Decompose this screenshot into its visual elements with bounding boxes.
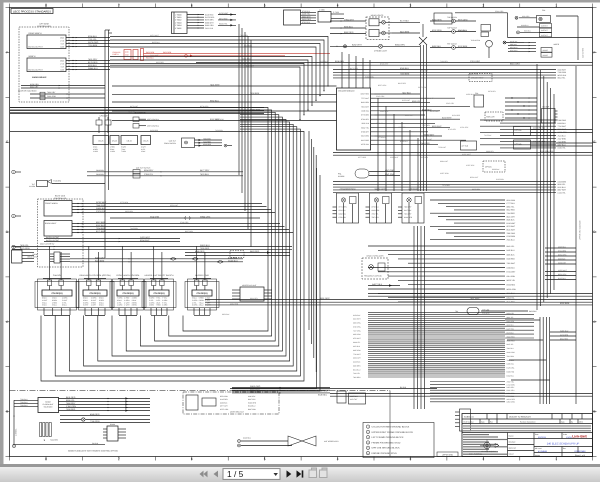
- svg-text:9796 GRN: 9796 GRN: [398, 126, 407, 129]
- svg-text:W179 ORG: W179 ORG: [205, 16, 215, 19]
- svg-text:REAR WINCH: REAR WINCH: [29, 32, 42, 35]
- svg-text:9921 BLK: 9921 BLK: [362, 122, 370, 125]
- svg-text:Link-Belt: Link-Belt: [572, 434, 587, 438]
- svg-text:9892 BLU: 9892 BLU: [210, 100, 219, 103]
- svg-text:C742 GRN: C742 GRN: [507, 383, 516, 386]
- svg-text:7431 WHT: 7431 WHT: [210, 84, 220, 87]
- svg-text:C411 BLK: C411 BLK: [205, 27, 214, 30]
- svg-text:C536 YEL: C536 YEL: [558, 147, 566, 150]
- svg-text:E: E: [593, 140, 595, 144]
- svg-text:7488 ORG: 7488 ORG: [558, 119, 567, 122]
- svg-text:CAL: CAL: [475, 92, 479, 95]
- svg-text:7423 BRN: 7423 BRN: [558, 141, 567, 144]
- svg-text:9631 GRY: 9631 GRY: [507, 215, 516, 218]
- svg-text:W562 YEL: W562 YEL: [361, 126, 369, 129]
- svg-text:GND: GND: [60, 36, 65, 39]
- svg-text:W178 ORG: W178 ORG: [88, 41, 99, 44]
- svg-text:C748 ORG: C748 ORG: [180, 221, 189, 224]
- svg-text:3 T9602: 3 T9602: [175, 19, 182, 22]
- svg-text:NUT UPPER ASSY: NUT UPPER ASSY: [324, 440, 339, 443]
- svg-text:9904 GRY: 9904 GRY: [144, 169, 154, 172]
- svg-text:W711 GRY: W711 GRY: [460, 126, 469, 129]
- svg-text:2808 BRN: 2808 BRN: [96, 169, 105, 172]
- svg-text:Drawn: Drawn: [509, 435, 514, 438]
- svg-text:1 GRN: 1 GRN: [117, 304, 123, 307]
- svg-text:7557 GRY: 7557 GRY: [422, 124, 431, 127]
- svg-text:ANT GND: ANT GND: [385, 169, 395, 172]
- svg-text:7538 BRN: 7538 BRN: [250, 92, 260, 95]
- svg-text:HYD TILT: HYD TILT: [350, 398, 357, 401]
- svg-text:W131 WHT: W131 WHT: [462, 153, 471, 156]
- svg-text:C773 BRN: C773 BRN: [120, 201, 129, 204]
- svg-text:C198 YEL: C198 YEL: [302, 13, 310, 16]
- svg-text:C237 RED: C237 RED: [470, 73, 479, 76]
- svg-text:W04 GRN: W04 GRN: [163, 51, 172, 54]
- svg-text:ALARM: ALARM: [29, 185, 35, 188]
- svg-text:3: 3: [410, 4, 412, 8]
- svg-text:CN-254(A): CN-254(A): [153, 292, 164, 295]
- svg-text:B357 GRN: B357 GRN: [378, 84, 387, 87]
- svg-text:P-T306: P-T306: [333, 11, 339, 14]
- svg-text:7526 RED: 7526 RED: [200, 247, 210, 250]
- svg-text:DIGITAL OUTPUT: DIGITAL OUTPUT: [28, 69, 44, 72]
- svg-text:W14 GRN: W14 GRN: [150, 215, 160, 218]
- svg-text:C126 YEL: C126 YEL: [558, 192, 566, 195]
- svg-text:B978 BRN: B978 BRN: [205, 19, 214, 22]
- svg-text:7748 ORG: 7748 ORG: [53, 180, 62, 183]
- svg-text:B278 ORG: B278 ORG: [200, 105, 209, 108]
- svg-text:5 WHT: 5 WHT: [83, 304, 88, 307]
- svg-text:7691 BLU: 7691 BLU: [507, 238, 516, 241]
- svg-text:W260 BLU: W260 BLU: [380, 110, 389, 113]
- svg-text:7401 GRY: 7401 GRY: [88, 58, 98, 61]
- svg-text:B491 GRN: B491 GRN: [361, 101, 370, 104]
- svg-text:HEATER & A/C SELECT SWITCH: HEATER & A/C SELECT SWITCH: [145, 274, 174, 277]
- svg-text:7637 WHT: 7637 WHT: [470, 297, 480, 300]
- svg-text:8: 8: [45, 4, 47, 8]
- svg-text:7906 ORG: 7906 ORG: [507, 232, 516, 235]
- svg-text:8114 GRN: 8114 GRN: [507, 275, 516, 278]
- svg-text:W286 BLU: W286 BLU: [560, 330, 569, 333]
- svg-text:LEFT FRAME GROUND BLOCK: LEFT FRAME GROUND BLOCK: [372, 436, 404, 439]
- svg-text:7 RED: 7 RED: [156, 304, 162, 307]
- svg-text:WINCH: WINCH: [29, 55, 36, 58]
- svg-text:9741 ORG: 9741 ORG: [558, 250, 567, 253]
- svg-text:8233 WHT: 8233 WHT: [442, 117, 452, 120]
- svg-text:7784 WHT: 7784 WHT: [558, 125, 567, 128]
- svg-text:B808 YEL: B808 YEL: [507, 296, 515, 299]
- svg-text:W735 WHT: W735 WHT: [219, 12, 229, 15]
- svg-text:9209 ORG: 9209 ORG: [203, 143, 212, 146]
- svg-text:Rev: Rev: [490, 420, 493, 423]
- svg-text:CAD - Solid Edge: CAD - Solid Edge: [469, 453, 482, 456]
- svg-text:MULTI-LEVER SW: MULTI-LEVER SW: [40, 243, 55, 246]
- svg-text:B916 BLU: B916 BLU: [335, 60, 345, 63]
- svg-text:9976 ORG: 9976 ORG: [458, 18, 468, 21]
- svg-text:W274 WHT: W274 WHT: [150, 34, 159, 37]
- svg-text:CONTROLLER: CONTROLLER: [54, 197, 67, 200]
- svg-text:J-T306: J-T306: [319, 9, 325, 12]
- svg-text:C308 BLU: C308 BLU: [361, 110, 370, 113]
- svg-text:240 ELEC SCHEM UPR UP: 240 ELEC SCHEM UPR UP: [547, 442, 580, 445]
- svg-text:3/2/2013: 3/2/2013: [538, 436, 547, 439]
- svg-text:C603 BLU: C603 BLU: [558, 246, 567, 249]
- svg-text:B673 RED: B673 RED: [350, 67, 359, 70]
- svg-text:B256 WHT: B256 WHT: [470, 176, 478, 179]
- svg-text:DEALER TO REBUILDS: DEALER TO REBUILDS: [509, 416, 531, 419]
- svg-text:FRONT WINCH CONTROL: FRONT WINCH CONTROL: [116, 274, 139, 277]
- svg-text:8132 WHT: 8132 WHT: [402, 99, 410, 102]
- svg-text:9162 BLU: 9162 BLU: [96, 224, 105, 227]
- svg-text:1: 1: [555, 4, 557, 8]
- svg-text:6: 6: [191, 4, 193, 8]
- svg-text:240 SCHEM: 240 SCHEM: [582, 48, 585, 58]
- svg-text:BOOM HOIST: BOOM HOIST: [45, 222, 57, 225]
- svg-text:W333 WHT: W333 WHT: [558, 269, 567, 272]
- svg-text:5: 5: [264, 457, 266, 461]
- svg-text:8613 ORG: 8613 ORG: [361, 139, 370, 142]
- svg-text:W156 BLU: W156 BLU: [228, 259, 238, 262]
- svg-text:W703 WHT: W703 WHT: [96, 201, 107, 204]
- svg-text:7440 RED: 7440 RED: [203, 140, 212, 143]
- svg-text:W956 RED: W956 RED: [242, 57, 251, 60]
- svg-text:LBCE PROCESS STANDARDS: LBCE PROCESS STANDARDS: [13, 10, 51, 13]
- svg-text:CAB SOL: CAB SOL: [53, 274, 61, 277]
- svg-text:9595 BLU: 9595 BLU: [344, 26, 353, 29]
- svg-text:INTERWHEW: INTERWHEW: [134, 112, 146, 115]
- svg-text:5: 5: [264, 4, 266, 8]
- svg-text:8675 WHT: 8675 WHT: [130, 105, 138, 108]
- svg-text:By: By: [571, 420, 573, 423]
- svg-text:8747 GRY: 8747 GRY: [246, 64, 255, 67]
- svg-text:7746 GRN: 7746 GRN: [90, 420, 100, 423]
- svg-text:7109 GRN: 7109 GRN: [558, 71, 567, 74]
- svg-text:7534 WHT: 7534 WHT: [361, 105, 369, 108]
- svg-text:UP/DOWN: UP/DOWN: [100, 115, 109, 118]
- svg-text:7802 GRN: 7802 GRN: [240, 34, 249, 37]
- svg-text:HEAD LIGHTS: HEAD LIGHTS: [371, 14, 384, 17]
- svg-text:7626 BRN: 7626 BRN: [215, 129, 224, 132]
- svg-text:7834 GRY: 7834 GRY: [47, 91, 56, 94]
- svg-text:PROX SWITCH: PROX SWITCH: [164, 142, 177, 145]
- svg-text:7435 YEL: 7435 YEL: [20, 244, 30, 247]
- svg-text:9807 WHT: 9807 WHT: [558, 189, 567, 192]
- svg-text:7216 BRN: 7216 BRN: [88, 44, 98, 47]
- svg-text:9530 WHT: 9530 WHT: [170, 204, 178, 207]
- svg-text:W04 BLK: W04 BLK: [529, 310, 537, 313]
- svg-text:CN-254(A): CN-254(A): [122, 292, 133, 295]
- svg-text:W215 ORG: W215 ORG: [215, 118, 224, 121]
- svg-text:8989 YEL: 8989 YEL: [412, 100, 422, 103]
- svg-text:C931 GRY: C931 GRY: [405, 114, 414, 117]
- svg-text:B433 BLU: B433 BLU: [558, 122, 567, 125]
- svg-text:8134 ORG: 8134 ORG: [452, 114, 461, 117]
- svg-text:8A30 RED: 8A30 RED: [318, 390, 328, 393]
- svg-text:5 T9604: 5 T9604: [175, 24, 182, 27]
- svg-text:8909 BLU: 8909 BLU: [88, 64, 97, 67]
- svg-text:8181 BRN: 8181 BRN: [507, 389, 516, 392]
- svg-text:8585 BLK: 8585 BLK: [507, 219, 516, 222]
- svg-text:C607 BRN: C607 BRN: [418, 86, 427, 89]
- svg-text:KOBELCO: KOBELCO: [464, 416, 474, 419]
- svg-text:7443 BRN: 7443 BRN: [130, 227, 139, 230]
- svg-text:C331 ORG: C331 ORG: [47, 95, 56, 98]
- svg-text:7839 YEL: 7839 YEL: [507, 380, 514, 383]
- svg-text:4: 4: [337, 4, 339, 8]
- svg-text:8515 WHT: 8515 WHT: [507, 229, 516, 232]
- svg-text:8820 BLK: 8820 BLK: [222, 313, 230, 316]
- svg-text:1 T9600: 1 T9600: [175, 13, 182, 16]
- svg-text:BUZZER / PWR: BUZZER / PWR: [195, 274, 209, 277]
- svg-text:STEADY REST: STEADY REST: [471, 77, 484, 80]
- svg-text:9913 ORG: 9913 ORG: [361, 135, 370, 138]
- svg-text:9102 BRN: 9102 BRN: [458, 45, 468, 48]
- svg-text:2 GRY: 2 GRY: [91, 304, 97, 307]
- svg-text:W567 RED: W567 RED: [361, 93, 370, 96]
- svg-text:9462 GRY: 9462 GRY: [507, 386, 516, 389]
- svg-text:W356 GRN: W356 GRN: [507, 288, 517, 291]
- svg-text:7391 WHT: 7391 WHT: [507, 262, 516, 265]
- svg-text:C541 RED: C541 RED: [420, 142, 430, 145]
- svg-text:B: B: [593, 410, 595, 414]
- svg-text:C790 GRY: C790 GRY: [361, 118, 370, 121]
- svg-text:W954 ORG: W954 ORG: [200, 215, 211, 218]
- svg-text:8A30 BLU: 8A30 BLU: [318, 394, 328, 397]
- svg-text:B: B: [6, 410, 8, 414]
- svg-text:W04 GRN: W04 GRN: [146, 51, 155, 54]
- svg-text:7668 GRY: 7668 GRY: [66, 402, 76, 405]
- svg-text:B742 GRY: B742 GRY: [448, 128, 457, 131]
- svg-text:B635 BLK: B635 BLK: [152, 41, 160, 44]
- svg-text:Sheet 1 of 5: Sheet 1 of 5: [575, 454, 585, 457]
- svg-text:R2R0024B0: R2R0024B0: [575, 450, 587, 453]
- svg-text:7457 BLK: 7457 BLK: [402, 92, 411, 95]
- svg-text:B210 WHT: B210 WHT: [507, 222, 517, 225]
- svg-text:Date: Date: [481, 420, 485, 423]
- svg-text:9212 BRN: 9212 BRN: [95, 259, 105, 262]
- svg-text:CN-25: CN-25: [127, 140, 132, 143]
- svg-text:B601 ORG: B601 ORG: [510, 63, 520, 66]
- svg-text:TWIN LVR: TWIN LVR: [486, 116, 495, 119]
- svg-text:UPR CAB GROUND BLOCK: UPR CAB GROUND BLOCK: [372, 447, 401, 450]
- svg-text:W513 BLU: W513 BLU: [200, 244, 210, 247]
- svg-text:E: E: [6, 140, 8, 144]
- svg-text:ENG GND: ENG GND: [385, 173, 395, 176]
- svg-text:8477 GRY: 8477 GRY: [200, 169, 210, 172]
- svg-text:CAL: CAL: [542, 9, 546, 12]
- svg-text:CN-254(A): CN-254(A): [89, 292, 100, 295]
- svg-text:8925 GRN: 8925 GRN: [472, 188, 481, 191]
- svg-text:C610 BRN: C610 BRN: [507, 235, 516, 238]
- svg-text:2 BLU: 2 BLU: [199, 304, 204, 307]
- svg-text:7A04 BRN: 7A04 BRN: [50, 439, 59, 442]
- svg-text:8788 GRY: 8788 GRY: [361, 131, 370, 134]
- svg-text:CN-25: CN-25: [112, 140, 117, 143]
- svg-text:8304 WHT: 8304 WHT: [140, 239, 150, 242]
- svg-text:C404 WHT: C404 WHT: [150, 54, 158, 57]
- svg-text:7: 7: [118, 457, 120, 461]
- svg-text:W619 ORG: W619 ORG: [250, 385, 261, 388]
- svg-text:6: 6: [191, 457, 193, 461]
- svg-text:C892 ORG: C892 ORG: [507, 401, 516, 404]
- svg-text:9 ORG: 9 ORG: [192, 304, 198, 307]
- svg-text:8202 GRN: 8202 GRN: [432, 29, 442, 32]
- svg-text:HEATER A/C UNIT: HEATER A/C UNIT: [242, 284, 256, 287]
- svg-text:CN-254(A): CN-254(A): [196, 292, 207, 295]
- svg-text:C696 BLK: C696 BLK: [507, 266, 516, 269]
- svg-text:8912 BRN: 8912 BRN: [96, 221, 106, 224]
- svg-text:A4077 BLK: A4077 BLK: [372, 283, 383, 286]
- svg-text:B173 BLK: B173 BLK: [400, 20, 410, 23]
- svg-text:7347 BRN: 7347 BRN: [558, 137, 567, 140]
- svg-text:6 T9605: 6 T9605: [175, 27, 182, 30]
- svg-text:(+V): (+V): [61, 62, 65, 65]
- svg-text:B804 BRN: B804 BRN: [432, 18, 442, 21]
- svg-text:9483 RED: 9483 RED: [250, 250, 260, 253]
- svg-text:8245 BLU: 8245 BLU: [400, 67, 409, 70]
- svg-text:9375 GRN: 9375 GRN: [20, 247, 30, 250]
- svg-text:SWING BRAKE: SWING BRAKE: [32, 76, 47, 79]
- svg-text:B927 BRN: B927 BRN: [185, 230, 194, 233]
- svg-text:C226 WHT: C226 WHT: [390, 156, 398, 159]
- svg-text:8292 GRY: 8292 GRY: [420, 70, 429, 73]
- svg-text:Othrs: Othrs: [579, 420, 583, 423]
- svg-text:7982 BRN: 7982 BRN: [203, 138, 212, 141]
- svg-text:7196 GRY: 7196 GRY: [440, 60, 449, 63]
- svg-text:8693 BLK: 8693 BLK: [558, 258, 566, 261]
- svg-text:REAR WINCH CONTROL (OPTION): REAR WINCH CONTROL (OPTION): [80, 274, 111, 277]
- svg-text:C146 BLU: C146 BLU: [243, 437, 252, 440]
- svg-text:C542 GRY: C542 GRY: [446, 102, 455, 105]
- svg-text:WIPER: WIPER: [554, 43, 560, 46]
- svg-text:7727 WHT: 7727 WHT: [361, 97, 369, 100]
- svg-text:8998 BLK: 8998 BLK: [492, 168, 500, 171]
- svg-text:7: 7: [118, 4, 120, 8]
- svg-text:W846 BLU: W846 BLU: [88, 67, 98, 70]
- svg-text:9296 BLU: 9296 BLU: [88, 35, 97, 38]
- svg-text:C204 ORG: C204 ORG: [495, 10, 504, 13]
- svg-text:UPPER RIGHT FRAME GROUND BLOCK: UPPER RIGHT FRAME GROUND BLOCK: [372, 431, 414, 434]
- svg-text:8914 YEL: 8914 YEL: [558, 77, 566, 80]
- svg-text:8392 BRN: 8392 BRN: [560, 302, 570, 305]
- svg-text:C373 YEL: C373 YEL: [96, 210, 106, 213]
- svg-text:CAB TILT SWITCH: CAB TILT SWITCH: [136, 167, 151, 170]
- svg-text:4 KR4049: 4 KR4049: [538, 450, 548, 453]
- svg-text:8523 GRN: 8523 GRN: [507, 199, 516, 202]
- svg-text:9277 ORG: 9277 ORG: [358, 156, 367, 159]
- svg-text:9483 GRN: 9483 GRN: [205, 24, 214, 27]
- svg-text:W608 BLK: W608 BLK: [96, 207, 106, 210]
- svg-text:EARTH: EARTH: [113, 53, 120, 56]
- svg-text:7781 YEL: 7781 YEL: [88, 38, 98, 41]
- svg-text:TOP WATCH: TOP WATCH: [447, 27, 458, 30]
- svg-text:DIGITAL OUTPUT: DIGITAL OUTPUT: [28, 46, 44, 49]
- svg-text:ENGINE GROUND STUD: ENGINE GROUND STUD: [372, 452, 398, 455]
- svg-text:B339 BLU: B339 BLU: [400, 140, 408, 143]
- svg-text:W787 GRY: W787 GRY: [466, 164, 475, 167]
- svg-text:W735 BLU: W735 BLU: [361, 143, 370, 146]
- svg-text:1 WHT: 1 WHT: [124, 304, 129, 307]
- svg-text:9699 WHT: 9699 WHT: [205, 21, 214, 24]
- svg-text:W357 GRN: W357 GRN: [440, 172, 449, 175]
- svg-text:F: F: [6, 50, 8, 54]
- svg-text:C777 BLU: C777 BLU: [507, 202, 516, 205]
- svg-text:B163 BLU: B163 BLU: [558, 277, 566, 280]
- svg-text:4A06 RED: 4A06 RED: [90, 413, 100, 416]
- svg-text:CONTROLLER: CONTROLLER: [37, 25, 51, 28]
- svg-text:W880 WHT: W880 WHT: [424, 134, 435, 137]
- svg-text:4 WHEEL: 4 WHEEL: [15, 429, 18, 436]
- svg-text:8726 BLU: 8726 BLU: [302, 10, 311, 13]
- svg-text:(+V): (+V): [61, 39, 65, 42]
- svg-text:9193 BRN: 9193 BRN: [496, 178, 505, 181]
- svg-text:GND: GND: [60, 59, 65, 62]
- svg-text:W632 YEL: W632 YEL: [219, 23, 228, 26]
- svg-text:7904 BRN: 7904 BRN: [96, 227, 106, 230]
- svg-text:BOOM FLOODLIGHT WITH REMOTE CO: BOOM FLOODLIGHT WITH REMOTE CONTROL OPTI…: [68, 450, 118, 453]
- svg-text:9122 BLU: 9122 BLU: [320, 60, 328, 63]
- svg-text:9743 YEL: 9743 YEL: [376, 122, 383, 125]
- svg-text:8740 RED: 8740 RED: [228, 256, 238, 259]
- svg-text:C658 BRN: C658 BRN: [558, 180, 567, 183]
- svg-text:B569 RED: B569 RED: [507, 284, 516, 287]
- svg-text:W258 BLU: W258 BLU: [466, 93, 475, 96]
- svg-text:CN-25: CN-25: [143, 140, 148, 143]
- svg-text:UPPER ERD: UPPER ERD: [442, 454, 454, 457]
- svg-text:W681 RED: W681 RED: [302, 18, 312, 21]
- svg-text:9985 WHT: 9985 WHT: [302, 15, 311, 18]
- svg-text:B852 BLK: B852 BLK: [432, 45, 442, 48]
- svg-text:8183 WHT: 8183 WHT: [558, 68, 567, 71]
- svg-text:B6 BLK: B6 BLK: [92, 442, 99, 445]
- svg-text:2: 2: [483, 4, 485, 8]
- svg-text:B202 WHT: B202 WHT: [352, 44, 363, 47]
- svg-text:B950 GRN: B950 GRN: [558, 273, 567, 276]
- svg-text:8416 BRN: 8416 BRN: [400, 30, 410, 33]
- svg-text:2 BRN: 2 BRN: [149, 304, 155, 307]
- svg-text:7508 RED: 7508 RED: [66, 408, 76, 411]
- svg-text:SOLENOID: SOLENOID: [44, 406, 54, 409]
- svg-text:8212 YEL: 8212 YEL: [128, 111, 135, 114]
- svg-text:7946 WHT: 7946 WHT: [96, 204, 106, 207]
- svg-text:8: 8: [45, 457, 47, 461]
- svg-text:W150 GRN: W150 GRN: [365, 75, 374, 78]
- svg-text:B501 RED: B501 RED: [560, 338, 569, 341]
- svg-text:B4 BLK: B4 BLK: [400, 386, 407, 389]
- svg-text:W916 RED: W916 RED: [507, 398, 516, 401]
- svg-text:B732 WHT: B732 WHT: [507, 271, 517, 274]
- svg-text:C201 ORG: C201 ORG: [470, 60, 480, 63]
- svg-text:8322 WHT: 8322 WHT: [424, 138, 432, 141]
- svg-text:9397 BLU: 9397 BLU: [558, 144, 567, 147]
- svg-text:9503 WHT: 9503 WHT: [558, 128, 567, 131]
- svg-text:UPPER ERD DIAGRAM: UPPER ERD DIAGRAM: [579, 220, 582, 240]
- svg-text:9445 BLU: 9445 BLU: [507, 249, 516, 252]
- svg-text:8533 WHT: 8533 WHT: [432, 125, 442, 128]
- svg-text:STROBE LIGHT: STROBE LIGHT: [374, 50, 388, 53]
- svg-text:4397 1/2W BLU: 4397 1/2W BLU: [147, 125, 160, 128]
- svg-text:B458 ORG: B458 ORG: [95, 256, 105, 259]
- svg-text:C289 WHT: C289 WHT: [425, 97, 433, 100]
- svg-text:7228 WHT: 7228 WHT: [438, 146, 446, 149]
- svg-text:4: 4: [337, 457, 339, 461]
- svg-text:7369 BRN: 7369 BRN: [400, 73, 410, 76]
- svg-text:C150 GRN: C150 GRN: [66, 405, 76, 408]
- svg-text:9439 ORG: 9439 ORG: [150, 129, 159, 132]
- svg-text:TOP WATCH: TOP WATCH: [447, 16, 458, 19]
- svg-text:W408 ORG: W408 ORG: [558, 131, 568, 134]
- svg-text:ECN Number: ECN Number: [464, 420, 474, 423]
